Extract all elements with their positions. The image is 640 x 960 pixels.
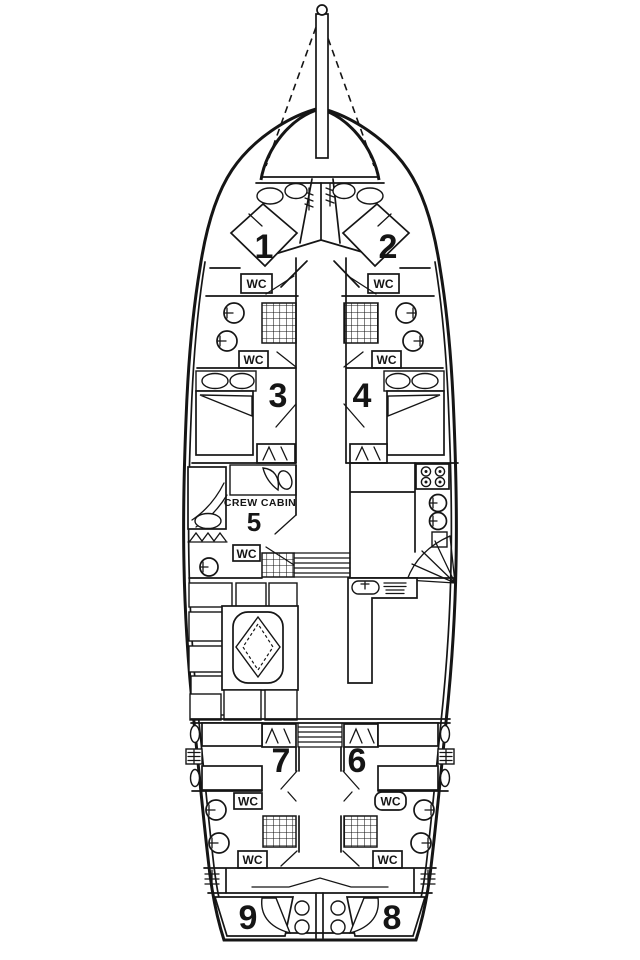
cabin-1: 1 — [231, 184, 307, 267]
pillow — [357, 188, 383, 204]
shower — [344, 303, 378, 343]
stairs-mid — [262, 553, 350, 577]
cabin-number: 3 — [269, 377, 288, 415]
bed — [202, 766, 262, 790]
stairs-aft — [298, 723, 342, 747]
cabin-number: 6 — [348, 742, 367, 780]
shower — [263, 816, 296, 847]
bench — [269, 583, 297, 607]
shower — [344, 816, 377, 847]
wc-label: WC — [378, 853, 398, 867]
pillow — [295, 901, 309, 915]
wc-label: WC — [247, 277, 267, 291]
bed — [378, 766, 438, 790]
pillow — [195, 514, 221, 529]
cabin-number: 8 — [383, 899, 402, 937]
wc-label: WC — [238, 795, 258, 809]
bench — [189, 583, 232, 607]
pillow — [285, 184, 307, 199]
bed — [202, 723, 262, 746]
wc-label: WC — [237, 547, 257, 561]
cabin-number: 2 — [379, 228, 398, 266]
cabin-number: 7 — [272, 742, 291, 780]
cabin-3: 3 — [196, 371, 296, 463]
shower — [262, 303, 296, 343]
pillow — [331, 901, 345, 915]
bar-counter — [348, 578, 417, 683]
deck-plan-drawing: 1 2 WC WC WC — [0, 0, 640, 960]
wc-label: WC — [381, 795, 401, 809]
porthole — [441, 726, 450, 743]
porthole — [441, 770, 450, 787]
companionway-roof — [252, 878, 388, 887]
cabin-number: 4 — [353, 377, 372, 415]
galley — [350, 463, 455, 583]
pillow — [412, 374, 438, 389]
porthole — [191, 726, 200, 743]
cabin-number: 5 — [247, 507, 261, 537]
cabin-4: 4 — [344, 371, 444, 463]
stern-deck — [205, 870, 435, 889]
bench — [265, 690, 297, 720]
pillow — [230, 374, 254, 389]
pillow — [386, 374, 410, 389]
porthole — [191, 770, 200, 787]
wc-row-forward: WC WC — [241, 274, 399, 293]
deck-plan-page: 1 2 WC WC WC — [0, 0, 640, 960]
bench — [190, 694, 221, 720]
cabin-number: 1 — [255, 228, 274, 266]
wc-label: WC — [377, 353, 397, 367]
pillow — [333, 184, 355, 199]
salon — [189, 583, 298, 720]
pillow — [331, 920, 345, 934]
pillow — [202, 374, 228, 389]
bowsprit — [316, 5, 328, 158]
bench — [224, 690, 261, 720]
pillow — [295, 920, 309, 934]
cabin-8: 8 — [331, 897, 425, 937]
cabin-number: 9 — [239, 899, 258, 937]
masthead — [317, 5, 327, 15]
wc-label: WC — [243, 853, 263, 867]
bench — [236, 583, 266, 607]
bed — [378, 723, 438, 746]
cabin-2: 2 — [333, 184, 409, 267]
mast — [316, 14, 328, 158]
wc-label: WC — [374, 277, 394, 291]
bed — [343, 204, 409, 266]
wc-row-mid: WC WC — [197, 351, 443, 368]
pillow — [257, 188, 283, 204]
wc-label: WC — [244, 353, 264, 367]
